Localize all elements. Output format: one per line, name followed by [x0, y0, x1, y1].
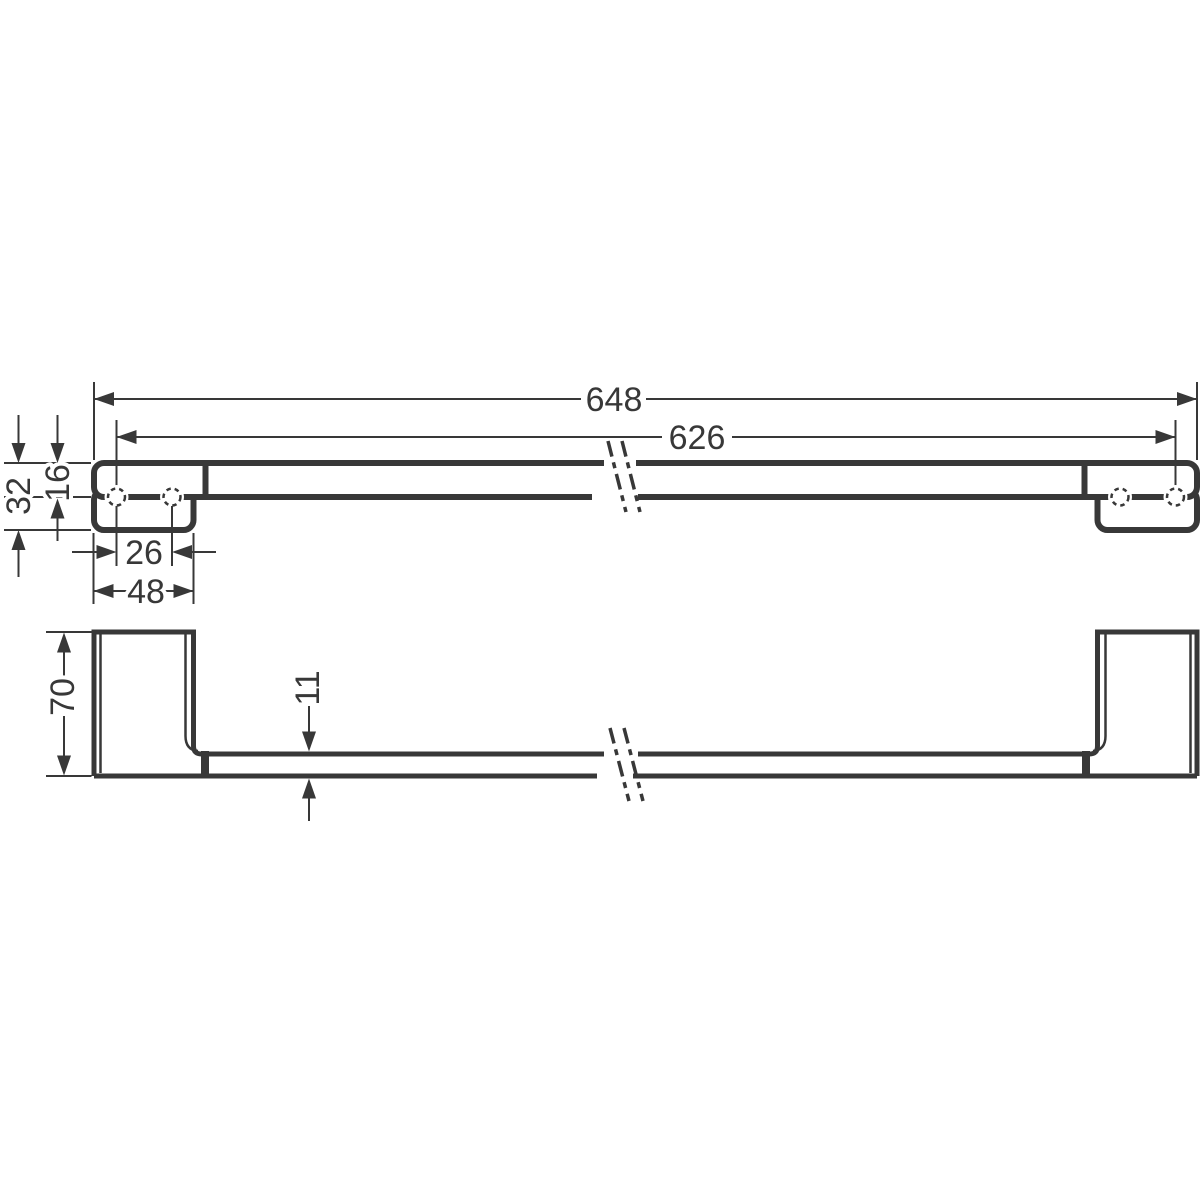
arrowhead-right: [1156, 430, 1176, 444]
dimension-rail-height: 16: [39, 415, 77, 541]
dim-label-overall-width: 648: [586, 381, 643, 419]
arrowhead-left: [117, 430, 137, 444]
dim-label-rail-height: 16: [39, 464, 77, 502]
technical-drawing-canvas: 648 626 32 16: [0, 0, 1200, 1200]
arrowhead-down: [12, 443, 26, 463]
break-gap-mask-top: [604, 452, 636, 472]
arrowhead-down: [51, 443, 65, 463]
dimension-overall-width: 648: [94, 381, 1197, 460]
dimension-projection: 70: [44, 632, 92, 776]
dim-label-mounting-width: 626: [669, 419, 726, 457]
dim-label-hole-spacing: 26: [125, 534, 163, 572]
dim-label-rail-thickness: 11: [289, 670, 327, 705]
dimension-end-height: 32: [0, 415, 38, 577]
arrowhead-up: [57, 633, 71, 653]
front-view: 648 626 32 16: [0, 381, 1197, 611]
technical-drawing: 648 626 32 16: [0, 0, 1200, 1200]
break-gap-mask-bottom: [592, 486, 638, 508]
dimension-rail-thickness: 11: [289, 670, 327, 821]
arrowhead-left: [172, 545, 192, 559]
break-symbol-plan: [610, 728, 643, 801]
dim-label-end-height: 32: [0, 477, 38, 515]
arrowhead-up: [302, 779, 316, 799]
arrowhead-down: [302, 732, 316, 752]
arrowhead-up: [12, 530, 26, 550]
dimension-mounting-width: 626: [117, 419, 1176, 457]
towel-rail-front: [94, 463, 1197, 497]
arrowhead-left: [94, 392, 114, 406]
dim-label-projection: 70: [44, 678, 82, 716]
arrowhead-right: [1177, 392, 1197, 406]
break-line: [624, 728, 643, 801]
plan-view: 70 11: [44, 632, 1197, 821]
arrowhead-left: [94, 584, 114, 598]
arrowhead-right: [97, 545, 117, 559]
arrowhead-down: [57, 756, 71, 776]
arrowhead-right: [174, 584, 194, 598]
dim-label-plate-width: 48: [127, 573, 165, 611]
